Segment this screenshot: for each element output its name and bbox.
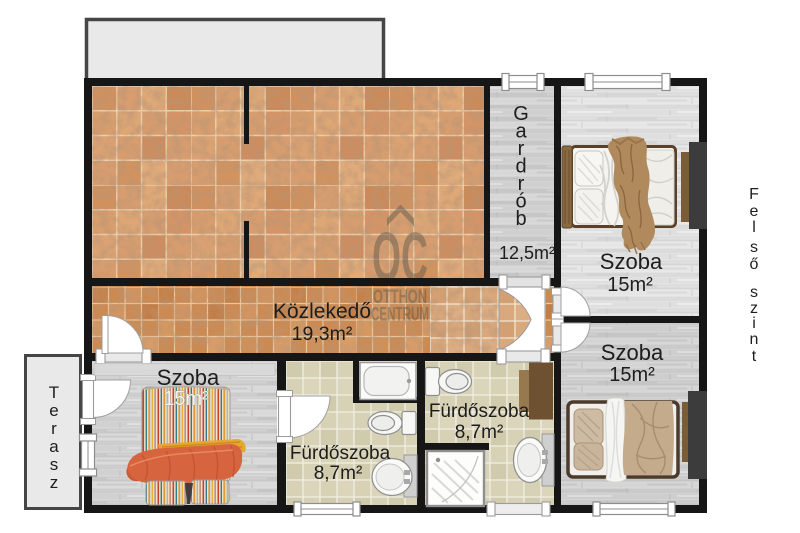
- svg-text:Szoba: Szoba: [157, 365, 220, 390]
- svg-text:e: e: [49, 401, 58, 420]
- svg-text:l: l: [752, 219, 756, 236]
- svg-text:s: s: [750, 284, 758, 301]
- svg-text:t: t: [752, 348, 757, 365]
- svg-text:e: e: [750, 203, 759, 220]
- svg-text:19,3m²: 19,3m²: [292, 323, 353, 345]
- svg-text:r: r: [51, 419, 57, 438]
- svg-text:b: b: [515, 208, 526, 230]
- svg-text:ő: ő: [750, 256, 759, 273]
- svg-text:8,7m²: 8,7m²: [455, 422, 504, 443]
- svg-text:8,7m²: 8,7m²: [314, 463, 363, 484]
- svg-text:s: s: [50, 455, 59, 474]
- svg-text:12,5m²: 12,5m²: [499, 243, 555, 263]
- svg-text:z: z: [50, 473, 59, 492]
- svg-text:15m²: 15m²: [609, 364, 655, 386]
- svg-text:Szoba: Szoba: [600, 249, 663, 274]
- svg-text:F: F: [749, 186, 759, 203]
- svg-text:15m²: 15m²: [163, 388, 209, 410]
- svg-text:CENTRUM: CENTRUM: [371, 305, 429, 326]
- svg-text:a: a: [49, 437, 59, 456]
- svg-text:Szoba: Szoba: [601, 340, 664, 365]
- svg-text:s: s: [750, 239, 758, 256]
- svg-text:T: T: [49, 383, 59, 402]
- svg-text:Fürdőszoba: Fürdőszoba: [290, 443, 391, 464]
- svg-text:15m²: 15m²: [607, 274, 653, 296]
- svg-text:Fürdőszoba: Fürdőszoba: [429, 401, 530, 422]
- svg-text:i: i: [752, 315, 756, 332]
- svg-text:n: n: [750, 331, 759, 348]
- svg-text:Közlekedő: Közlekedő: [273, 300, 371, 323]
